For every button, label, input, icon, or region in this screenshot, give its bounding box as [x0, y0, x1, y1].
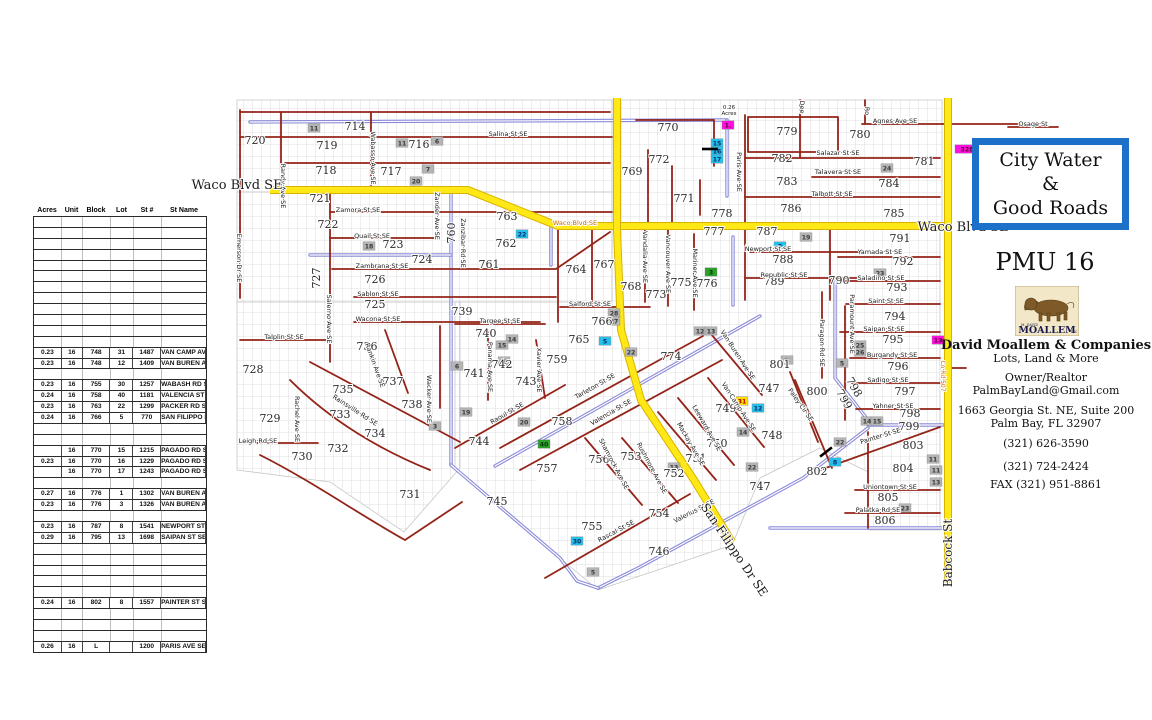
table-header-cell: St # — [133, 207, 161, 214]
block-number: 718 — [316, 164, 337, 177]
svg-text:40: 40 — [540, 441, 549, 448]
svg-text:11: 11 — [310, 125, 319, 132]
block-number: 785 — [884, 207, 905, 220]
block-number: 783 — [777, 175, 798, 188]
street-label: Burgandy·St·SE — [867, 351, 917, 359]
table-cell — [83, 620, 111, 630]
block-number: 730 — [292, 450, 313, 463]
svg-text:15: 15 — [873, 418, 882, 425]
table-cell — [34, 587, 62, 597]
table-row — [34, 271, 206, 282]
table-cell: 0.24 — [34, 413, 62, 423]
street-label: Talplin·St·SE — [263, 333, 304, 341]
table-cell: 776 — [83, 500, 111, 510]
table-row — [34, 631, 206, 642]
svg-text:13: 13 — [707, 328, 716, 335]
block-number: 797 — [895, 385, 916, 398]
table-cell: 15 — [110, 446, 133, 456]
table-cell — [134, 250, 162, 260]
table-row — [34, 587, 206, 598]
table-cell — [83, 250, 111, 260]
table-cell: 31 — [110, 348, 133, 358]
table-cell: 0.24 — [34, 598, 62, 608]
table-row: 0.24167665770SAN FILIPPO DR — [34, 413, 206, 424]
table-cell: VAN BUREN AVE SE — [161, 359, 206, 369]
table-cell — [162, 620, 206, 630]
table-cell: 30 — [110, 380, 133, 390]
table-cell — [62, 511, 83, 521]
table-cell: 1487 — [133, 348, 161, 358]
table-row — [34, 620, 206, 631]
table-cell: L — [83, 642, 111, 652]
block-number: 732 — [328, 442, 349, 455]
street-label: Vandalia·Ave·SE — [641, 231, 649, 283]
table-cell: 16 — [62, 522, 83, 532]
street-label: Paris·Ave·SE — [735, 152, 743, 192]
table-cell — [162, 337, 206, 347]
table-row — [34, 544, 206, 555]
phone-number-1: (321) 626-3590 — [936, 437, 1152, 450]
table-cell — [34, 271, 62, 281]
block-number: 768 — [621, 280, 642, 293]
table-cell — [62, 555, 83, 565]
table-cell — [83, 239, 111, 249]
block-number: 729 — [260, 412, 281, 425]
block-number: 721 — [310, 192, 331, 205]
table-cell — [34, 576, 62, 586]
table-cell: 8 — [110, 598, 133, 608]
block-number: 803 — [903, 439, 924, 452]
table-cell — [134, 369, 162, 379]
table-row: 0.271677611302VAN BUREN AVE SE — [34, 489, 206, 500]
table-cell — [111, 271, 134, 281]
table-cell — [162, 566, 206, 576]
table-cell — [34, 217, 62, 227]
street-label: Panama·Ave·SE — [486, 342, 494, 392]
table-cell — [62, 369, 83, 379]
block-number: 740 — [476, 327, 497, 340]
block-number: 794 — [885, 310, 906, 323]
table-cell — [111, 424, 134, 434]
table-cell: 16 — [62, 380, 83, 390]
table-cell: VAN CAMP AVE SE — [161, 348, 206, 358]
street-label: Mariner·Ave·SE — [691, 248, 699, 297]
table-cell — [162, 478, 206, 488]
block-number: 795 — [883, 333, 904, 346]
table-cell — [62, 478, 83, 488]
block-number: 755 — [582, 520, 603, 533]
table-row — [34, 566, 206, 577]
street-label: Osage·St — [1018, 120, 1048, 128]
table-cell: SAIPAN ST SE — [161, 533, 206, 543]
table-cell — [162, 369, 206, 379]
table-cell — [134, 337, 162, 347]
street-label: Paragon·Rd·SE — [818, 319, 826, 367]
address-line1: 1663 Georgia St. NE, Suite 200 — [936, 404, 1152, 417]
svg-text:12: 12 — [754, 405, 763, 412]
table-row — [34, 555, 206, 566]
table-cell — [111, 261, 134, 271]
table-cell — [62, 576, 83, 586]
table-cell: 0.23 — [34, 348, 62, 358]
street-label: Agnes·Ave·SE — [873, 117, 917, 125]
block-number: 770 — [658, 121, 679, 134]
block-number: 716 — [409, 138, 430, 151]
street-label: Rachel·Ave·SE — [293, 396, 301, 442]
table-row — [34, 609, 206, 620]
table-cell: 22 — [110, 402, 133, 412]
table-cell — [111, 511, 134, 521]
table-row — [34, 315, 206, 326]
table-row — [34, 217, 206, 228]
table-cell — [83, 217, 111, 227]
table-cell — [134, 435, 162, 445]
table-row: 0.2316770161229PAGADO RD SE — [34, 457, 206, 468]
block-number: 743 — [516, 375, 537, 388]
table-cell — [34, 609, 62, 619]
svg-text:14: 14 — [508, 336, 517, 343]
block-number: 796 — [888, 360, 909, 373]
table-cell: PACKER RD SE — [161, 402, 206, 412]
street-label: Wacona·St·SE — [356, 315, 401, 323]
table-cell — [162, 315, 206, 325]
table-cell — [162, 587, 206, 597]
block-number: 775 — [671, 276, 692, 289]
block-number: 748 — [762, 429, 783, 442]
svg-text:22: 22 — [836, 439, 845, 446]
table-cell: 1181 — [133, 391, 161, 401]
block-number: 793 — [887, 281, 908, 294]
table-row — [34, 326, 206, 337]
table-cell — [134, 587, 162, 597]
table-cell — [34, 239, 62, 249]
table-row — [34, 293, 206, 304]
table-cell — [111, 326, 134, 336]
table-cell: PAINTER ST SE — [161, 598, 206, 608]
table-cell — [34, 282, 62, 292]
block-number: 765 — [569, 333, 590, 346]
table-cell — [134, 631, 162, 641]
screenshot-root: 1111672018619314152205282722131213221419… — [0, 0, 1152, 720]
table-cell — [111, 315, 134, 325]
street-label: Vancouver·Ave·SE — [664, 235, 672, 294]
table-cell — [134, 271, 162, 281]
block-number: 767 — [594, 258, 615, 271]
table-cell: 16 — [62, 642, 83, 652]
svg-text:12: 12 — [696, 328, 705, 335]
block-number: 757 — [537, 462, 558, 475]
address-line2: Palm Bay, FL 32907 — [936, 417, 1152, 430]
table-cell: SAN FILIPPO DR — [161, 413, 206, 423]
table-cell — [111, 576, 134, 586]
email-text: PalmBayLand@Gmail.com — [936, 384, 1152, 397]
block-number: 747 — [759, 382, 780, 395]
table-cell: 1 — [110, 489, 133, 499]
banner-line: Good Roads — [979, 197, 1122, 221]
block-number: 734 — [365, 427, 386, 440]
svg-text:15: 15 — [713, 140, 722, 147]
table-cell: 16 — [62, 391, 83, 401]
block-number: 759 — [547, 353, 568, 366]
table-cell — [162, 293, 206, 303]
block-number: 787 — [757, 225, 778, 238]
table-cell — [162, 511, 206, 521]
block-number: 763 — [497, 210, 518, 223]
table-cell: PAGADO RD SE — [161, 467, 206, 477]
table-row — [34, 369, 206, 380]
table-cell: 0.23 — [34, 522, 62, 532]
block-number: 804 — [893, 462, 914, 475]
table-cell: 8 — [110, 522, 133, 532]
table-cell — [83, 282, 111, 292]
table-cell: 755 — [83, 380, 111, 390]
table-cell: 1326 — [133, 500, 161, 510]
street-label: Babcock St — [941, 519, 955, 588]
table-cell: 16 — [62, 446, 83, 456]
street-label: Saladino·St·SE — [858, 274, 905, 282]
table-cell — [111, 435, 134, 445]
svg-text:8: 8 — [833, 459, 837, 466]
table-cell: 770 — [83, 467, 111, 477]
table-cell — [62, 282, 83, 292]
table-cell: VALENCIA ST SE — [161, 391, 206, 401]
table-cell: 5 — [110, 413, 133, 423]
svg-text:11: 11 — [398, 140, 407, 147]
table-cell: 0.26 — [34, 642, 62, 652]
table-cell: 770 — [83, 446, 111, 456]
block-number: 754 — [649, 507, 670, 520]
table-row — [34, 511, 206, 522]
table-cell — [111, 293, 134, 303]
block-number: 799 — [899, 420, 920, 433]
street-label: Wabasso·Ave·SE — [369, 131, 377, 184]
table-cell: 787 — [83, 522, 111, 532]
table-cell — [34, 261, 62, 271]
svg-text:22: 22 — [627, 349, 636, 356]
block-number: 739 — [452, 305, 473, 318]
table-row: 16770151215PAGADO RD SE — [34, 446, 206, 457]
table-cell — [83, 631, 111, 641]
table-cell — [162, 631, 206, 641]
table-row: 0.231677631326VAN BUREN AVE SE — [34, 500, 206, 511]
street-label: Xavier·Ave·SE — [535, 347, 543, 392]
table-cell: 0.23 — [34, 402, 62, 412]
table-cell — [34, 467, 62, 477]
table-cell — [34, 631, 62, 641]
table-cell: 0.23 — [34, 380, 62, 390]
table-cell — [134, 555, 162, 565]
table-cell — [83, 315, 111, 325]
street-label: Waco·Blvd·SE — [553, 219, 597, 227]
street-label: Newport·St·SE — [745, 245, 792, 253]
block-number: 778 — [712, 207, 733, 220]
svg-text:5: 5 — [840, 360, 844, 367]
street-label: Salazar·St·SE — [816, 149, 859, 157]
table-cell: 1698 — [133, 533, 161, 543]
pmu-label: PMU 16 — [975, 248, 1115, 276]
table-row — [34, 435, 206, 446]
table-row — [34, 261, 206, 272]
table-cell — [62, 315, 83, 325]
street-label: Waco Blvd SE — [191, 178, 282, 193]
table-cell — [111, 217, 134, 227]
street-label: Zanzibar·Rd·SE — [459, 218, 467, 268]
table-cell — [62, 239, 83, 249]
listings-table: AcresUnitBlockLotSt #St Name 0.231674831… — [33, 205, 207, 653]
table-cell — [34, 435, 62, 445]
banner-line: & — [979, 173, 1122, 197]
table-cell — [134, 304, 162, 314]
table-cell — [62, 261, 83, 271]
table-cell — [111, 555, 134, 565]
table-cell: PAGADO RD SE — [161, 446, 206, 456]
table-header-cell: St Name — [161, 207, 207, 214]
table-cell: 748 — [83, 359, 111, 369]
table-cell: 795 — [83, 533, 111, 543]
table-cell — [111, 282, 134, 292]
table-row — [34, 337, 206, 348]
table-row — [34, 304, 206, 315]
black-bar-marker — [702, 148, 718, 151]
block-number: 726 — [365, 273, 386, 286]
table-cell — [162, 435, 206, 445]
table-cell: 1541 — [133, 522, 161, 532]
table-cell: 802 — [83, 598, 111, 608]
street-label: Sablon·St·SE — [357, 290, 398, 298]
table-cell — [162, 217, 206, 227]
table-cell — [111, 566, 134, 576]
table-cell: 40 — [110, 391, 133, 401]
svg-text:23: 23 — [901, 505, 910, 512]
table-cell: 766 — [83, 413, 111, 423]
svg-text:18: 18 — [365, 243, 374, 250]
block-number: 731 — [400, 488, 421, 501]
table-cell — [34, 544, 62, 554]
table-cell: 776 — [83, 489, 111, 499]
block-number: 727 — [310, 268, 323, 289]
table-row — [34, 228, 206, 239]
table-cell: 16 — [62, 500, 83, 510]
table-cell: 758 — [83, 391, 111, 401]
street-label: Emerson·Dr·SE — [235, 234, 243, 283]
street-label: Talbott·St·SE — [811, 190, 853, 198]
block-number: 717 — [381, 165, 402, 178]
block-number: 773 — [646, 288, 667, 301]
table-cell — [83, 293, 111, 303]
table-cell — [34, 304, 62, 314]
table-cell — [34, 620, 62, 630]
table-cell: 1229 — [133, 457, 161, 467]
banner-line: City Water — [979, 149, 1122, 173]
table-cell — [111, 620, 134, 630]
block-number: 805 — [878, 491, 899, 504]
svg-text:20: 20 — [412, 178, 421, 185]
table-cell: 16 — [62, 457, 83, 467]
table-cell — [134, 293, 162, 303]
table-cell — [83, 337, 111, 347]
table-cell — [134, 511, 162, 521]
svg-text:3: 3 — [433, 423, 437, 430]
table-cell — [111, 228, 134, 238]
street-label: Saint·St·SE — [868, 297, 904, 305]
table-cell — [111, 369, 134, 379]
block-number: 802 — [807, 465, 828, 478]
table-cell — [34, 566, 62, 576]
svg-text:14: 14 — [739, 429, 748, 436]
block-number: 719 — [317, 139, 338, 152]
table-cell — [162, 271, 206, 281]
table-cell: 16 — [62, 348, 83, 358]
svg-text:17: 17 — [713, 156, 722, 163]
table-cell — [34, 424, 62, 434]
table-cell — [34, 511, 62, 521]
table-cell: 17 — [110, 467, 133, 477]
table-cell: 0.23 — [34, 500, 62, 510]
table-cell — [134, 544, 162, 554]
table-cell — [162, 250, 206, 260]
table-cell — [134, 239, 162, 249]
table-cell — [62, 326, 83, 336]
street-label: Quail·St·SE — [354, 232, 390, 240]
table-row — [34, 250, 206, 261]
table-cell: 0.23 — [34, 359, 62, 369]
table-cell: 16 — [62, 467, 83, 477]
table-cell: 13 — [110, 533, 133, 543]
table-row — [34, 282, 206, 293]
block-number: 760 — [445, 223, 458, 244]
block-number: 744 — [469, 435, 490, 448]
table-header-cell: Acres — [33, 207, 61, 214]
table-row: 0.2316755301257WABASH RD SE — [34, 380, 206, 391]
table-cell — [34, 446, 62, 456]
svg-text:6: 6 — [455, 363, 459, 370]
table-cell — [83, 261, 111, 271]
table-cell — [62, 424, 83, 434]
street-label: Zander·Ave·SE — [433, 192, 441, 240]
table-cell: 0.27 — [34, 489, 62, 499]
block-number: 806 — [875, 514, 896, 527]
table-cell — [162, 609, 206, 619]
street-label: Leigh·Rd·SE — [239, 437, 278, 445]
block-number: 781 — [914, 155, 935, 168]
table-cell — [111, 250, 134, 260]
table-cell — [83, 271, 111, 281]
svg-text:3: 3 — [709, 269, 713, 276]
block-number: 784 — [879, 177, 900, 190]
table-cell: NEWPORT ST SE — [161, 522, 206, 532]
block-number: 722 — [318, 218, 339, 231]
table-cell — [162, 326, 206, 336]
block-number: 714 — [345, 120, 366, 133]
table-row: 0.2416758401181VALENCIA ST SE — [34, 391, 206, 402]
table-cell: 16 — [62, 413, 83, 423]
table-cell — [162, 555, 206, 565]
street-label: Salina·St·SE — [489, 130, 528, 138]
table-cell — [134, 478, 162, 488]
table-row: 0.241680281557PAINTER ST SE — [34, 598, 206, 609]
table-row: 0.2316748121409VAN BUREN AVE SE — [34, 359, 206, 370]
svg-text:19: 19 — [802, 234, 811, 241]
table-cell — [62, 544, 83, 554]
table-cell — [162, 228, 206, 238]
table-cell — [34, 326, 62, 336]
table-cell — [111, 587, 134, 597]
table-header-cell: Lot — [110, 207, 133, 214]
street-label: Palatka·Rd·SE — [856, 506, 901, 514]
block-number: 724 — [412, 253, 433, 266]
table-cell: 770 — [83, 457, 111, 467]
table-cell: PAGADO RD SE — [161, 457, 206, 467]
